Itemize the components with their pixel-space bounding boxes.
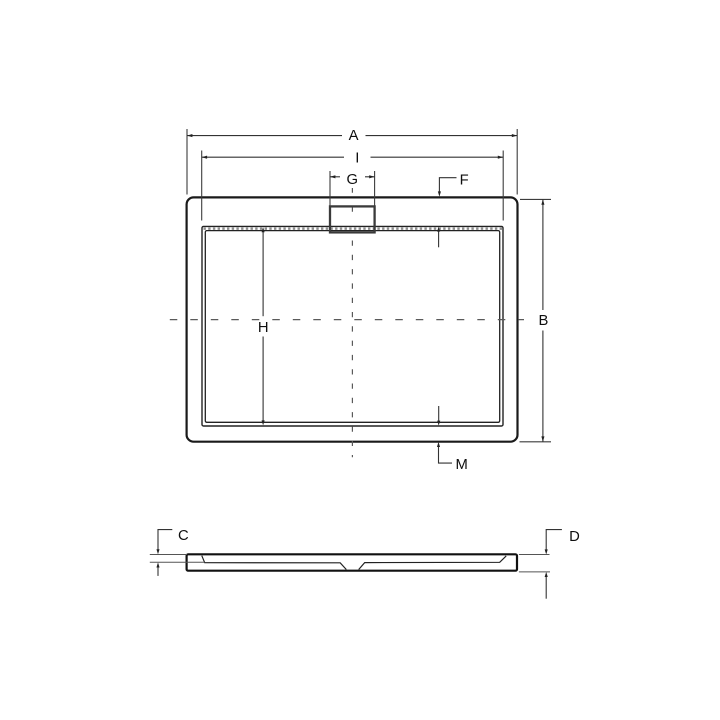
svg-text:F: F xyxy=(460,172,469,188)
svg-text:D: D xyxy=(569,529,580,545)
svg-text:H: H xyxy=(258,320,269,336)
svg-text:G: G xyxy=(347,172,359,188)
svg-text:M: M xyxy=(456,457,468,473)
svg-text:C: C xyxy=(178,528,189,544)
svg-text:B: B xyxy=(538,313,548,329)
svg-text:A: A xyxy=(349,128,359,144)
svg-text:I: I xyxy=(355,151,359,167)
